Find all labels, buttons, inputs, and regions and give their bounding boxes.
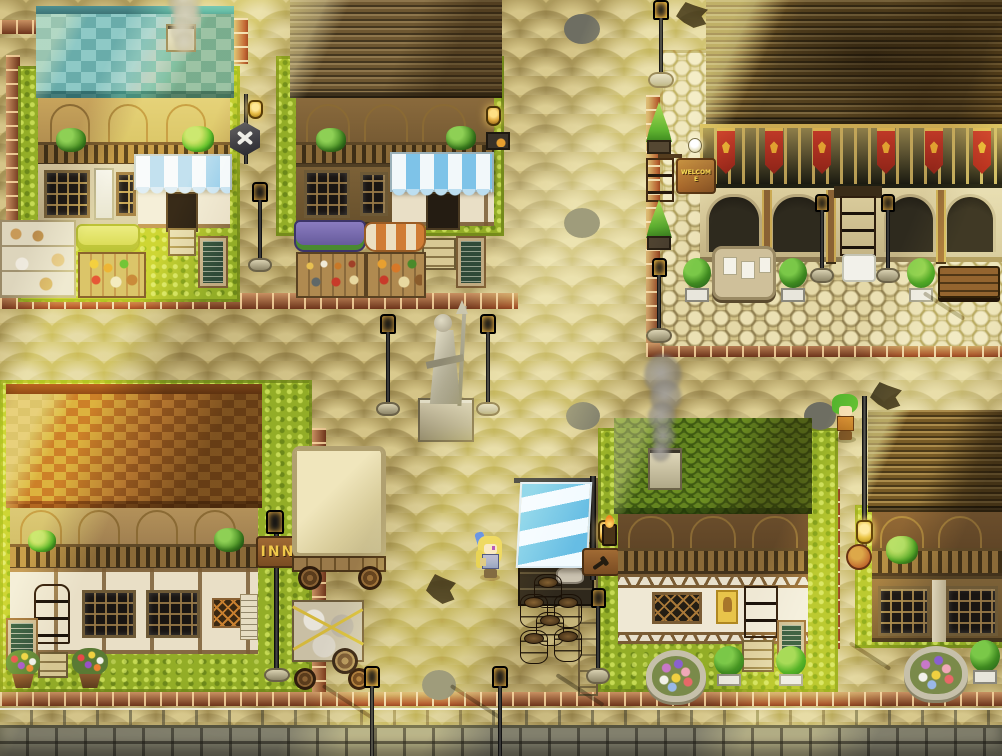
ball-lamp-icon [688,138,702,153]
topiary [774,646,808,686]
wall-torch-icon [602,524,617,546]
yellow-poster [716,590,738,624]
red-banner [813,128,831,174]
street-lamp [488,666,512,756]
barrel [554,628,582,662]
char-eye [492,546,495,550]
chimney-smoke [174,32,196,54]
building-market-hall [280,0,510,310]
street-lamp [648,0,674,92]
topiary [778,258,808,304]
chimney-smoke [651,442,671,462]
shop-doorway[interactable] [426,192,460,230]
arcade-arch [706,194,762,252]
street-lamp [360,666,384,756]
topiary [712,646,746,686]
striped-awning [134,154,232,190]
wall-pillar [932,580,946,642]
red-banner [717,128,735,174]
balcony-plant [886,536,918,564]
red-banner [765,128,783,174]
posted-notice [741,261,755,279]
red-banner [877,128,895,174]
lantern-icon [248,100,263,119]
topiary [968,640,1002,688]
spare-wheel [332,648,358,674]
balcony [618,548,808,574]
wagon-wheel [358,566,382,590]
banner-balcony [700,124,1002,188]
lattice-window [44,170,90,218]
post-lantern-icon [856,520,873,544]
roof-ridge [36,6,234,14]
stall-table[interactable] [78,252,146,298]
posted-notice [723,257,737,275]
lantern-icon [486,106,501,126]
lattice-window [116,172,136,216]
red-banner [925,128,943,174]
shop-doorway[interactable] [166,192,198,232]
flower-bed [904,646,968,700]
bakery-stall[interactable] [0,220,76,298]
hammer-pick-icon[interactable] [230,122,260,156]
menu-chalkboard[interactable] [200,238,226,286]
dark-plank-roof [706,0,1002,124]
manhole-cover [564,14,600,44]
purple-canopy-stall[interactable] [294,220,366,252]
wagon-canvas [292,446,386,558]
red-banner [973,128,991,174]
lattice-window [946,586,998,636]
hero-statue [408,306,482,446]
banner-hall-door[interactable] [840,196,876,256]
manhole-cover [564,208,600,238]
hanging-plant [316,128,346,152]
flower-pot [6,650,40,688]
roof-ridge [6,384,262,394]
welcome-sign-assembly: WELCOME [658,136,718,198]
produce-goods [370,256,422,294]
stone-steps [168,228,196,256]
lattice-window [82,590,136,638]
char-body [837,416,854,431]
post-lantern-icon [266,510,284,534]
lattice-window [360,172,388,216]
statue-head [434,314,452,332]
wall-topiary [644,200,674,252]
orange-striped-stall[interactable] [364,222,426,252]
hanging-plant [446,126,476,150]
timber-truss [618,574,808,588]
arched-window [108,104,148,146]
door-lamp [876,194,900,286]
luggage-cart [290,598,368,694]
npc-green-haired-villager[interactable] [830,392,860,444]
dark-plank-roof [868,410,1002,512]
white-door[interactable] [94,168,114,220]
pillar [936,190,946,262]
stone-steps [38,652,68,678]
topiary [682,258,712,304]
char-legs [839,431,852,440]
barrel [520,630,548,664]
post-base [264,668,290,682]
door-lamp [810,194,834,286]
char-legs [484,569,497,578]
statue-pedestal [418,398,474,442]
street-lamp [646,258,672,348]
street-lamp [248,182,272,274]
welcome-sign-text: WELCOME [681,169,711,183]
inn-door[interactable] [34,584,70,644]
flower-bed [646,650,706,702]
green-roof [614,418,812,514]
char-satchel [480,558,486,566]
stone-steps [742,640,774,672]
green-canopy-stall[interactable] [76,224,140,252]
building-green-tavern [598,350,838,690]
hanging-plant [56,128,86,152]
door-mat [842,254,876,282]
diamond-lattice-window [652,592,702,624]
hanging-plant [214,528,244,552]
lattice-window [146,590,200,638]
arcade-arch [944,194,996,252]
covered-wagon [290,444,390,594]
lattice-window [304,170,350,218]
notice-board[interactable] [712,246,776,300]
tavern-door[interactable] [744,586,778,638]
potion-goods [300,256,362,294]
teal-roof [36,6,234,98]
bench[interactable] [938,266,1000,298]
round-emblem-icon[interactable] [846,544,872,570]
dark-plank-roof [290,0,502,98]
street-lamp [376,314,400,418]
welcome-sign[interactable]: WELCOME [676,158,716,194]
lattice-window [878,586,930,636]
hanging-plant [28,530,56,552]
char-face [839,406,852,416]
npc-blonde-villager[interactable] [474,532,504,582]
wagon-wheel [298,566,322,590]
hanging-plant [182,126,214,152]
flower-pot [72,648,108,688]
stone-steps [422,238,456,270]
stall-table[interactable] [366,252,426,298]
stall-table[interactable] [296,252,366,298]
game-viewport: WELCOME [0,0,1002,756]
cart-wheel [294,668,316,690]
posted-notice [759,257,771,273]
inn-roof [6,384,262,508]
menu-chalkboard[interactable] [458,238,484,286]
street-lamp [476,314,500,418]
striped-banner [516,482,593,568]
striped-awning [390,152,494,192]
bread-goods [82,256,142,294]
char-face [484,544,497,554]
balcony-planter [486,132,510,150]
manhole-cover [566,402,600,430]
